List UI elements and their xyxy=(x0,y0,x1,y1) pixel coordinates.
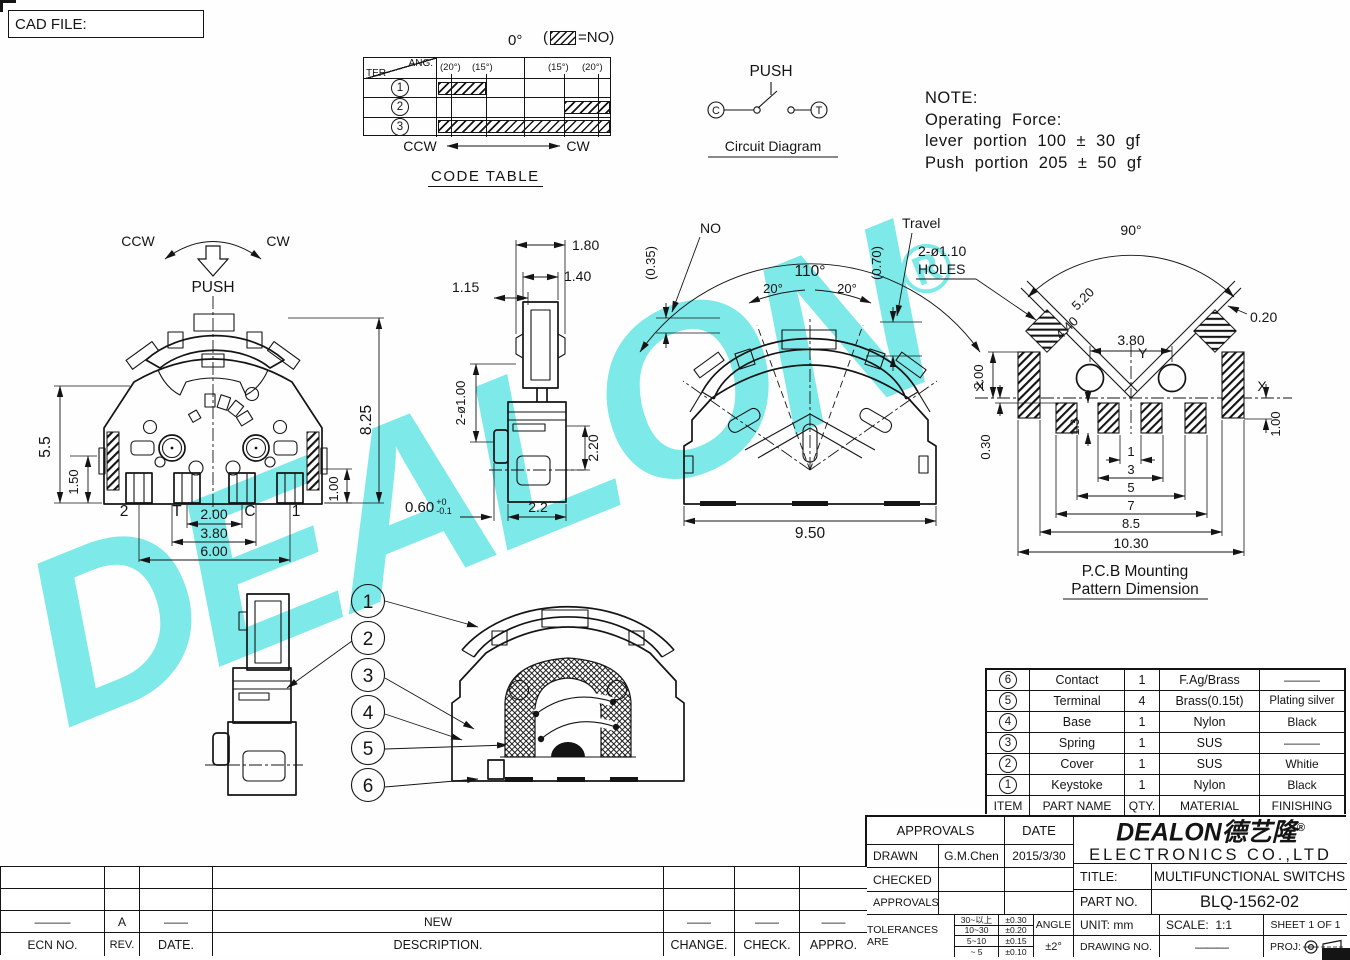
part-row-finishing: Plating silver xyxy=(1260,691,1344,712)
hatch-swatch-icon xyxy=(550,31,576,45)
tol-range-2: 5~10 xyxy=(955,936,999,947)
circuit-title: Circuit Diagram xyxy=(725,138,821,154)
note-line-3: lever portion 100 ± 30 gf xyxy=(925,131,1142,153)
approvals2-label: APPROVALS xyxy=(867,892,939,915)
front-terminal-t: T xyxy=(172,503,182,520)
side-dim-lever: 1.15 xyxy=(452,279,479,295)
circuit-push-label: PUSH xyxy=(749,63,792,80)
drawing-no-value: ——— xyxy=(1160,936,1264,957)
callout-2: 2 xyxy=(352,622,385,655)
part-row-name: Contact xyxy=(1030,670,1125,691)
circuit-terminal-t: T xyxy=(816,105,823,117)
part-row-finishing: Whitie xyxy=(1260,754,1344,775)
rev-header-date: DATE. xyxy=(140,933,213,956)
code-header-ter: TER xyxy=(366,68,386,79)
part-row-qty: 1 xyxy=(1125,754,1160,775)
pcb-dim-below: 0.30 xyxy=(978,434,993,459)
front-ccw-label: CCW xyxy=(121,233,155,249)
part-row-qty: 1 xyxy=(1125,733,1160,754)
projection-label: PROJ: xyxy=(1270,941,1301,953)
code-table-corner-cell: TER ANG. xyxy=(364,58,437,79)
pcb-dim-p3: 3 xyxy=(1127,462,1134,477)
front-terminal-2: 2 xyxy=(120,503,129,520)
code-angle-label-3: (20°) xyxy=(582,62,603,73)
code-table-title: CODE TABLE xyxy=(428,168,543,187)
code-row-2: 2 xyxy=(364,98,610,117)
code-angle-label-2: (15°) xyxy=(548,62,569,73)
part-row-material: SUS xyxy=(1160,754,1260,775)
unit-value: mm xyxy=(1113,918,1133,932)
rev-empty-cell xyxy=(140,867,213,889)
code-tick-center xyxy=(524,58,525,137)
unit-label: UNIT: xyxy=(1080,918,1110,932)
side-dim-tab-tol-dn: -0.1 xyxy=(436,507,452,516)
pcb-title-2: Pattern Dimension xyxy=(1071,581,1199,598)
part-row-item: 5 xyxy=(999,692,1017,710)
part-row-finishing: Black xyxy=(1260,712,1344,733)
rev-appro-value: —— xyxy=(800,911,867,933)
company-block: DEALON德艺隆® ELECTRONICS CO.,LTD xyxy=(1074,817,1347,864)
part-row-name: Terminal xyxy=(1030,691,1125,712)
pcb-dim-p7: 7 xyxy=(1127,498,1134,513)
front-dim-tc: 2.00 xyxy=(200,506,227,522)
legend-close-paren: ) xyxy=(609,29,614,46)
pcb-pattern-view: X X Y 90° 5.20 4.40 0.20 3.80 xyxy=(916,222,1292,599)
rev-empty-cell xyxy=(735,889,800,911)
side-dim-holes: 2-ø1.00 xyxy=(453,381,468,426)
part-row-name: Spring xyxy=(1030,733,1125,754)
rev-header-appro: APPRO. xyxy=(800,933,867,956)
pcb-dim-p85: 8.5 xyxy=(1122,516,1140,531)
cad-file-box: CAD FILE: xyxy=(8,10,204,38)
date-header: DATE xyxy=(1005,817,1074,845)
front-dim-height: 8.25 xyxy=(358,405,375,435)
code-row-3-item: 3 xyxy=(391,118,409,136)
code-header-ang: ANG. xyxy=(409,58,433,69)
title-value: MULTIFUNCTIONAL SWITCHS xyxy=(1152,864,1347,890)
drawn-name: G.M.Chen xyxy=(939,845,1005,868)
unit-cell: UNIT: mm xyxy=(1074,915,1160,936)
rev-empty-cell xyxy=(105,889,140,911)
part-row-item: 2 xyxy=(999,755,1017,773)
callout-6: 6 xyxy=(352,769,385,802)
callout-5: 5 xyxy=(352,732,385,765)
part-row-item: 3 xyxy=(999,734,1017,752)
side-view: 1.80 1.40 1.15 2-ø1.00 2.20 2.2 xyxy=(452,237,601,521)
parts-header-part: PART NAME xyxy=(1030,796,1125,816)
circuit-diagram: PUSH C T Circuit Diagram xyxy=(708,63,838,157)
scale-value: 1:1 xyxy=(1215,918,1232,932)
svg-text:1: 1 xyxy=(363,592,374,613)
title-block: APPROVALS DATE DRAWN G.M.Chen 2015/3/30 … xyxy=(865,815,1346,955)
parts-header-material: MATERIAL xyxy=(1160,796,1260,816)
note-line-4: Push portion 205 ± 50 gf xyxy=(925,153,1142,175)
company-logo: DEALON德艺隆® xyxy=(1116,815,1305,845)
rev-change-value: —— xyxy=(664,911,735,933)
svg-text:3: 3 xyxy=(363,666,374,687)
scale-label: SCALE: xyxy=(1166,918,1209,932)
front-dim-clip: 1.50 xyxy=(66,469,81,494)
part-row-qty: 1 xyxy=(1125,712,1160,733)
side-dim-tab-value: 0.60 xyxy=(405,499,434,516)
rotation-dim-total-angle: 110° xyxy=(795,263,826,280)
pcb-title-1: P.C.B Mounting xyxy=(1082,563,1189,580)
dome-contact xyxy=(551,742,585,757)
rev-empty-cell xyxy=(213,889,664,911)
svg-text:2: 2 xyxy=(363,629,374,650)
svg-text:4: 4 xyxy=(363,703,374,724)
part-no-label: PART NO. xyxy=(1074,890,1152,915)
callout-4: 4 xyxy=(352,696,385,729)
side-dim-body-h: 2.20 xyxy=(585,434,601,461)
rev-check-value: —— xyxy=(735,911,800,933)
part-no-value: BLQ-1562-02 xyxy=(1152,890,1347,915)
code-legend: ( =NO ) xyxy=(543,29,614,46)
tol-value-1: ±0.20 xyxy=(999,926,1034,937)
tolerances-label: TOLERANCES ARE xyxy=(867,915,955,957)
rotation-travel-label: Travel xyxy=(902,215,940,231)
note-line-1: NOTE: xyxy=(925,88,1142,110)
rotation-no-label: NO xyxy=(700,220,721,236)
front-terminals xyxy=(126,473,303,503)
title-label: TITLE: xyxy=(1074,864,1152,890)
revision-table: ——— A —— NEW —— —— —— ECN NO. REV. DATE.… xyxy=(0,866,866,955)
part-row-qty: 4 xyxy=(1125,691,1160,712)
part-row-name: Cover xyxy=(1030,754,1125,775)
code-table: TER ANG. (20°) (15°) (15°) (20°) 1 2 3 xyxy=(363,57,611,136)
front-dim-body-height: 5.5 xyxy=(37,436,54,458)
tol-value-0: ±0.30 xyxy=(999,915,1034,926)
pcb-dim-p103: 10.30 xyxy=(1113,535,1148,551)
rotation-dim-left-angle: 20° xyxy=(763,281,783,296)
rev-header-ecn: ECN NO. xyxy=(1,933,105,956)
rev-empty-cell xyxy=(735,867,800,889)
code-angle-label-0: (20°) xyxy=(440,62,461,73)
push-arrow-icon xyxy=(198,246,228,276)
front-dim-t2: 3.80 xyxy=(200,525,227,541)
part-row-material: Brass(0.15t) xyxy=(1160,691,1260,712)
pcb-dim-p5: 5 xyxy=(1127,480,1134,495)
part-row-finishing: ——— xyxy=(1260,733,1344,754)
circuit-terminal-c: C xyxy=(712,105,720,117)
logo-latin: DEALON xyxy=(1116,819,1222,847)
note-line-2: Operating Force: xyxy=(925,110,1142,132)
side-dim-tab: 0.60 +0 -0.1 xyxy=(405,498,452,516)
parts-header-item: ITEM xyxy=(987,796,1030,816)
front-dim-width: 6.00 xyxy=(200,543,227,559)
rev-empty-cell xyxy=(105,867,140,889)
part-row-name: Keystoke xyxy=(1030,775,1125,796)
front-code-contacts xyxy=(189,394,253,426)
logo-cjk: 德艺隆 xyxy=(1222,819,1297,847)
code-tick-3 xyxy=(564,74,565,137)
code-row-2-bar xyxy=(564,101,610,114)
part-row-qty: 1 xyxy=(1125,775,1160,796)
rev-empty-cell xyxy=(1,889,105,911)
legend-open-paren: ( xyxy=(543,29,548,46)
section-view: 1 2 3 4 5 6 xyxy=(205,585,684,802)
part-row-item: 6 xyxy=(999,671,1017,689)
pcb-holes-label-2: HOLES xyxy=(918,261,965,277)
part-row-name: Base xyxy=(1030,712,1125,733)
svg-text:6: 6 xyxy=(363,776,374,797)
svg-text:5: 5 xyxy=(363,739,374,760)
rotation-dim-width: 9.50 xyxy=(795,525,826,542)
checked-date xyxy=(1005,868,1074,892)
sheet-label: SHEET xyxy=(1270,919,1305,931)
code-ccw-label: CCW xyxy=(403,138,437,154)
rotation-dim-right-angle: 20° xyxy=(837,281,857,296)
rev-header-check: CHECK. xyxy=(735,933,800,956)
rotation-travel-dim: (0.70) xyxy=(869,246,884,280)
approvals2-name xyxy=(939,892,1005,915)
part-row-finishing: ——— xyxy=(1260,670,1344,691)
rev-date-value: —— xyxy=(140,911,213,933)
code-row-1: 1 xyxy=(364,79,610,98)
tol-range-3: ~ 5 xyxy=(955,947,999,958)
part-row-finishing: Black xyxy=(1260,775,1344,796)
front-view: CCW CW PUSH xyxy=(37,233,384,562)
front-push-label: PUSH xyxy=(191,279,234,296)
code-angle-label-1: (15°) xyxy=(472,62,493,73)
sheet-value: 1 OF 1 xyxy=(1308,919,1340,931)
code-cw-label: CW xyxy=(566,138,590,154)
pcb-dim-pad-h: 1.3 xyxy=(1068,418,1082,435)
pcb-dim-side-pad: 1.00 xyxy=(1268,411,1283,436)
part-row-material: Nylon xyxy=(1160,712,1260,733)
rev-ecn-value: ——— xyxy=(1,911,105,933)
rev-empty-cell xyxy=(664,889,735,911)
tol-value-3: ±0.10 xyxy=(999,947,1034,958)
code-table-direction-arrow: CCW CW xyxy=(403,138,590,154)
front-terminal-c: C xyxy=(244,503,255,520)
corner-mark-bottom-right xyxy=(1322,948,1350,960)
pcb-dim-angle: 90° xyxy=(1120,222,1141,238)
rev-empty-cell xyxy=(800,889,867,911)
approvals-header: APPROVALS xyxy=(867,817,1005,845)
checked-name xyxy=(939,868,1005,892)
legend-eq-no: =NO xyxy=(578,29,609,46)
code-tick-2 xyxy=(486,74,487,137)
parts-table: 6 Contact 1 F.Ag/Brass ——— 5 Terminal 4 … xyxy=(985,668,1346,814)
rev-description-value: NEW xyxy=(213,911,664,933)
approvals2-date xyxy=(1005,892,1074,915)
logo-registered-icon: ® xyxy=(1297,822,1305,834)
code-table-header: TER ANG. (20°) (15°) (15°) (20°) xyxy=(364,58,610,79)
side-dim-stem: 1.40 xyxy=(564,268,591,284)
drawn-label: DRAWN xyxy=(867,845,939,868)
part-row-material: Nylon xyxy=(1160,775,1260,796)
part-row-item: 1 xyxy=(999,776,1017,794)
pcb-dim-p1: 1 xyxy=(1127,444,1134,459)
corner-mark-top-left-v xyxy=(0,0,3,12)
scale-cell: SCALE: 1:1 xyxy=(1160,915,1264,936)
code-row-1-item: 1 xyxy=(391,79,409,97)
drawing-sheet: DEALON® PUSH C T xyxy=(0,0,1350,960)
part-row-material: SUS xyxy=(1160,733,1260,754)
code-tick-1 xyxy=(451,74,452,137)
side-dim-stem-top: 1.80 xyxy=(572,237,599,253)
rev-empty-cell xyxy=(664,867,735,889)
rev-header-change: CHANGE. xyxy=(664,933,735,956)
side-dim-body-w: 2.2 xyxy=(528,499,548,515)
note-block: NOTE: Operating Force: lever portion 100… xyxy=(925,88,1142,174)
code-tick-4 xyxy=(598,74,599,137)
cad-file-label: CAD FILE: xyxy=(15,16,87,33)
angle-label: ANGLE xyxy=(1034,915,1074,936)
rev-rev-value: A xyxy=(105,911,140,933)
part-row-qty: 1 xyxy=(1125,670,1160,691)
angle-value: ±2° xyxy=(1034,936,1074,957)
company-name: ELECTRONICS CO.,LTD xyxy=(1089,846,1332,865)
pcb-holes-label-1: 2-ø1.10 xyxy=(918,243,966,259)
pcb-dim-diag1: 5.20 xyxy=(1069,285,1098,314)
callout-3: 3 xyxy=(352,659,385,692)
front-cw-label: CW xyxy=(266,233,290,249)
rev-empty-cell xyxy=(213,867,664,889)
rev-empty-cell xyxy=(140,889,213,911)
front-terminal-1: 1 xyxy=(292,503,301,520)
tol-range-1: 10~30 xyxy=(955,926,999,937)
code-row-2-item: 2 xyxy=(391,98,409,116)
parts-header-qty: QTY. xyxy=(1125,796,1160,816)
callout-1: 1 xyxy=(352,585,385,618)
checked-label: CHECKED xyxy=(867,868,939,892)
front-dim-terminal: 1.00 xyxy=(326,476,341,501)
code-zero-label: 0° xyxy=(508,32,522,49)
drawn-date: 2015/3/30 xyxy=(1005,845,1074,868)
part-row-material: F.Ag/Brass xyxy=(1160,670,1260,691)
pcb-dim-above: 2.00 xyxy=(971,364,986,389)
tol-value-2: ±0.15 xyxy=(999,936,1034,947)
rev-header-rev: REV. xyxy=(105,933,140,956)
part-row-item: 4 xyxy=(999,713,1017,731)
parts-header-finishing: FINISHING xyxy=(1260,796,1344,816)
rev-header-description: DESCRIPTION. xyxy=(213,933,664,956)
tol-range-0: 30~以上 xyxy=(955,915,999,926)
code-row-3: 3 xyxy=(364,118,610,137)
code-row-1-bar xyxy=(438,82,486,95)
pcb-dim-holes-span: 3.80 xyxy=(1117,332,1144,348)
sheet-cell: SHEET 1 OF 1 xyxy=(1264,915,1347,936)
drawing-no-label: DRAWING NO. xyxy=(1074,936,1160,957)
rev-empty-cell xyxy=(800,867,867,889)
rotation-no-dim: (0.35) xyxy=(643,246,658,280)
pcb-dim-pad-thk: 0.20 xyxy=(1250,309,1277,325)
rev-empty-cell xyxy=(1,867,105,889)
